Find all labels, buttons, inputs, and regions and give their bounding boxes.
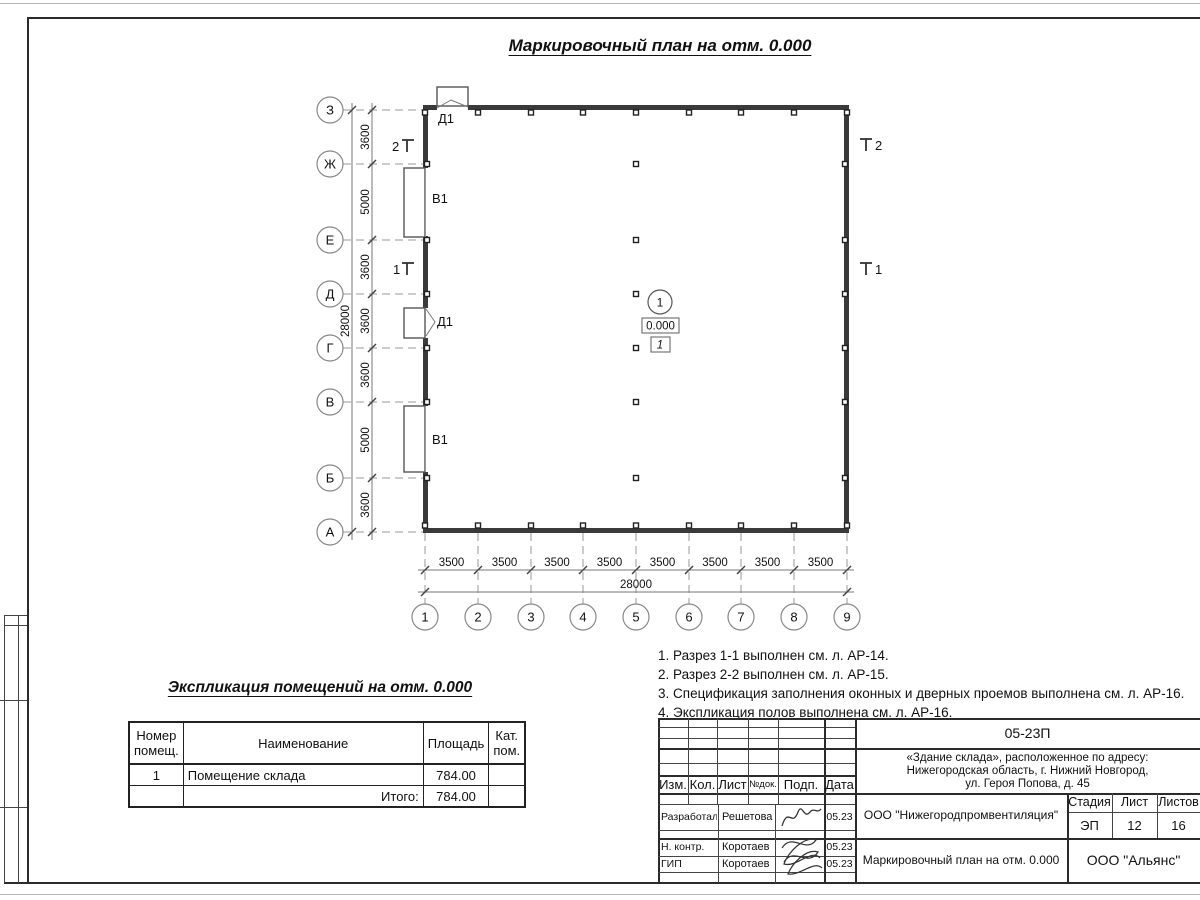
- col-header-data: Дата: [824, 775, 855, 793]
- gate-lower-leaf: [404, 406, 425, 472]
- gate-lower-label: В1: [432, 432, 448, 447]
- signature-developer: [779, 802, 823, 832]
- dim-row: 3600: [360, 308, 372, 334]
- axis-row-label: В: [326, 395, 335, 410]
- drawing-sheet: { "plan": { "title": "Маркировочный план…: [0, 0, 1200, 900]
- axis-row-label: Е: [326, 233, 335, 248]
- axis-labels: З Ж Е Д Г В Б А 1 2 3 4 5 6 7 8 9: [324, 103, 851, 625]
- dim-col: 3500: [702, 557, 728, 569]
- dim-col: 3500: [808, 557, 834, 569]
- section-2-left: 2: [392, 139, 399, 154]
- structural-columns: [423, 110, 850, 528]
- note-item: 2. Разрез 2-2 выполнен см. л. АР-15.: [658, 665, 1200, 684]
- company-name: ООО "Альянс": [1067, 838, 1200, 883]
- address-line-1: «Здание склада», расположенное по адресу…: [907, 752, 1149, 765]
- expl-header-area: Площадь: [423, 722, 489, 764]
- axis-row-label: З: [326, 103, 334, 118]
- door-left-label: Д1: [437, 314, 453, 329]
- dim-col: 3500: [492, 557, 518, 569]
- row-name-ncontrol: Коротаев: [722, 838, 774, 856]
- section-1-right: 1: [875, 262, 882, 277]
- col-header-podp: Подп.: [778, 775, 824, 793]
- expl-row-number: 1: [129, 764, 183, 786]
- explication-table: Номер помещ. Наименование Площадь Кат. п…: [128, 721, 526, 808]
- room-floor-mark: 1: [657, 340, 663, 352]
- axis-col-label: 9: [843, 610, 850, 625]
- dim-row: 3600: [360, 492, 372, 518]
- signature-korotaev: [776, 834, 824, 876]
- axis-row-label: Д: [326, 287, 335, 302]
- col-header-izm: Изм.: [658, 775, 688, 793]
- row-role-gip: ГИП: [661, 856, 717, 872]
- row-date-gip: 05.23: [824, 856, 855, 872]
- stage-value: ЭП: [1067, 812, 1112, 838]
- axis-col-label: 2: [474, 610, 481, 625]
- room-marker: 1 0.000 1: [642, 290, 679, 352]
- axis-col-label: 6: [685, 610, 692, 625]
- axis-row-label: Ж: [324, 157, 336, 172]
- address-line-2: Нижегородская область, г. Нижний Новгоро…: [907, 765, 1149, 778]
- explication-header-row: Номер помещ. Наименование Площадь Кат. п…: [129, 722, 525, 764]
- dim-row: 3600: [360, 254, 372, 280]
- dim-col-total: 28000: [620, 579, 652, 591]
- document-title: Маркировочный план на отм. 0.000: [857, 838, 1065, 883]
- row-date-developer: 05.23: [824, 804, 855, 830]
- explication-title-text: Экспликация помещений на отм. 0.000: [168, 679, 472, 696]
- dim-col: 3500: [650, 557, 676, 569]
- expl-total-empty: [129, 786, 183, 808]
- note-item: 1. Разрез 1-1 выполнен см. л. АР-14.: [658, 646, 1200, 665]
- row-name-developer: Решетова: [722, 804, 774, 830]
- axis-col-label: 7: [737, 610, 744, 625]
- dim-col: 3500: [439, 557, 465, 569]
- expl-header-number: Номер помещ.: [129, 722, 183, 764]
- door-top-leaf: [437, 87, 468, 106]
- axis-col-label: 4: [579, 610, 586, 625]
- explication-total-row: Итого: 784.00: [129, 786, 525, 808]
- axis-col-label: 1: [421, 610, 428, 625]
- section-marks: [402, 139, 872, 275]
- project-address: «Здание склада», расположенное по адресу…: [855, 749, 1200, 793]
- sheets-value: 16: [1157, 812, 1200, 838]
- address-line-3: ул. Героя Попова, д. 45: [965, 778, 1090, 791]
- expl-total-cat: [489, 786, 525, 808]
- section-mark-numbers: 2 1 2 1: [392, 138, 882, 277]
- door-swing-chevrons: [426, 100, 468, 336]
- sheet-header: Лист: [1112, 793, 1157, 812]
- col-header-list: Лист: [717, 775, 748, 793]
- row-name-gip: Коротаев: [722, 856, 774, 872]
- dim-row: 3600: [360, 362, 372, 388]
- expl-row-area: 784.00: [423, 764, 489, 786]
- axis-bubbles: [317, 97, 860, 630]
- row-role-ncontrol: Н. контр.: [661, 838, 717, 856]
- dim-row: 5000: [360, 427, 372, 453]
- axis-col-label: 5: [632, 610, 639, 625]
- row-date-ncontrol: 05.23: [824, 838, 855, 856]
- col-header-kol: Кол.: [688, 775, 717, 793]
- expl-total-area: 784.00: [423, 786, 489, 808]
- axis-row-label: Г: [326, 341, 333, 356]
- opening-labels: Д1 В1 Д1 В1: [432, 111, 454, 447]
- explication-title: Экспликация помещений на отм. 0.000: [130, 679, 510, 697]
- axis-col-label: 3: [527, 610, 534, 625]
- axis-row-label: А: [326, 525, 335, 540]
- title-block: 05-23П «Здание склада», расположенное по…: [658, 718, 1200, 883]
- col-header-ndok: №док.: [748, 775, 778, 793]
- note-item: 3. Спецификация заполнения оконных и две…: [658, 684, 1200, 703]
- expl-header-name: Наименование: [183, 722, 423, 764]
- dim-col: 3500: [544, 557, 570, 569]
- sheets-header: Листов: [1157, 793, 1200, 812]
- sheet-value: 12: [1112, 812, 1157, 838]
- room-number: 1: [657, 296, 664, 310]
- expl-row-name: Помещение склада: [183, 764, 423, 786]
- expl-row-cat: [489, 764, 525, 786]
- dim-row-total: 28000: [340, 305, 352, 337]
- section-2-right: 2: [875, 138, 882, 153]
- room-elevation: 0.000: [646, 321, 675, 333]
- axis-row-label: Б: [326, 471, 335, 486]
- section-1-left: 1: [393, 262, 400, 277]
- door-left-chevron: [426, 309, 435, 336]
- expl-total-label: Итого:: [183, 786, 423, 808]
- dim-col: 3500: [597, 557, 623, 569]
- explication-data-row: 1 Помещение склада 784.00: [129, 764, 525, 786]
- door-top-label: Д1: [438, 111, 454, 126]
- building-walls: [423, 105, 849, 533]
- organization-name: ООО "Нижегородпромвентиляция": [857, 793, 1065, 838]
- notes-list: 1. Разрез 1-1 выполнен см. л. АР-14. 2. …: [658, 646, 1200, 722]
- door-left-leaf: [404, 308, 425, 338]
- row-role-developer: Разработал: [661, 804, 717, 830]
- dim-col: 3500: [755, 557, 781, 569]
- gate-upper-label: В1: [432, 191, 448, 206]
- expl-header-cat: Кат. пом.: [489, 722, 525, 764]
- dim-row: 5000: [360, 189, 372, 215]
- project-code: 05-23П: [855, 719, 1200, 748]
- gate-upper-leaf: [404, 168, 425, 237]
- axis-col-label: 8: [790, 610, 797, 625]
- wall-openings: [404, 87, 468, 472]
- dim-row: 3600: [360, 124, 372, 150]
- stage-header: Стадия: [1067, 793, 1112, 812]
